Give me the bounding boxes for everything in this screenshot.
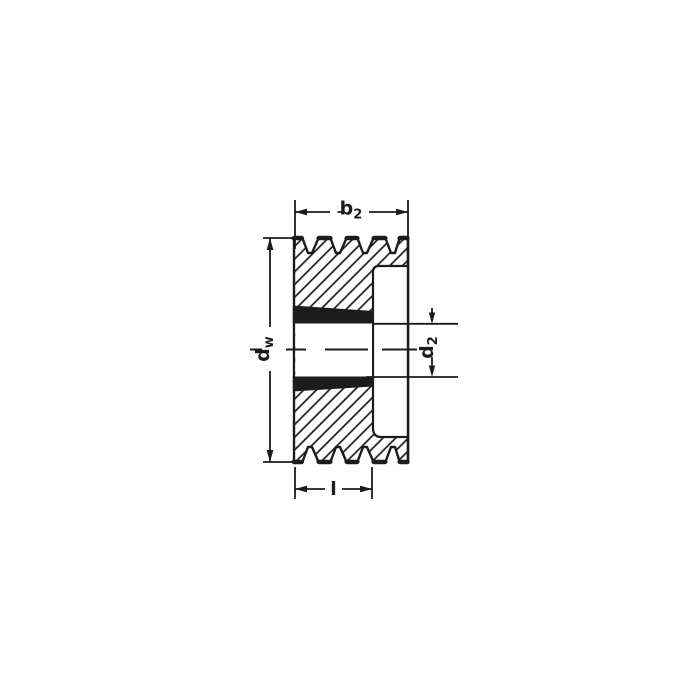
dim-l-arrow-right: [360, 486, 372, 493]
dim-dw-arrow-bottom: [267, 450, 274, 462]
dim-b2-label: b2: [340, 198, 363, 223]
dim-l-label: l: [330, 478, 337, 500]
bush-recess: [373, 266, 408, 437]
dim-dw-label: dw: [252, 336, 277, 362]
pulley-body: [250, 237, 417, 463]
dim-b2-arrow-left: [295, 209, 307, 216]
dim-l-arrow-left: [295, 486, 307, 493]
dim-dw-arrow-top: [267, 238, 274, 250]
dim-d2-arrow-top: [429, 313, 435, 325]
pulley-technical-drawing: b2 dw d2 l: [0, 0, 700, 700]
dim-b2-arrow-right: [396, 209, 408, 216]
dim-d2-label: d2: [416, 336, 441, 359]
dimension-l: l: [295, 467, 372, 500]
dim-d2-arrow-bottom: [429, 366, 435, 378]
drawing-canvas: b2 dw d2 l: [0, 0, 700, 700]
